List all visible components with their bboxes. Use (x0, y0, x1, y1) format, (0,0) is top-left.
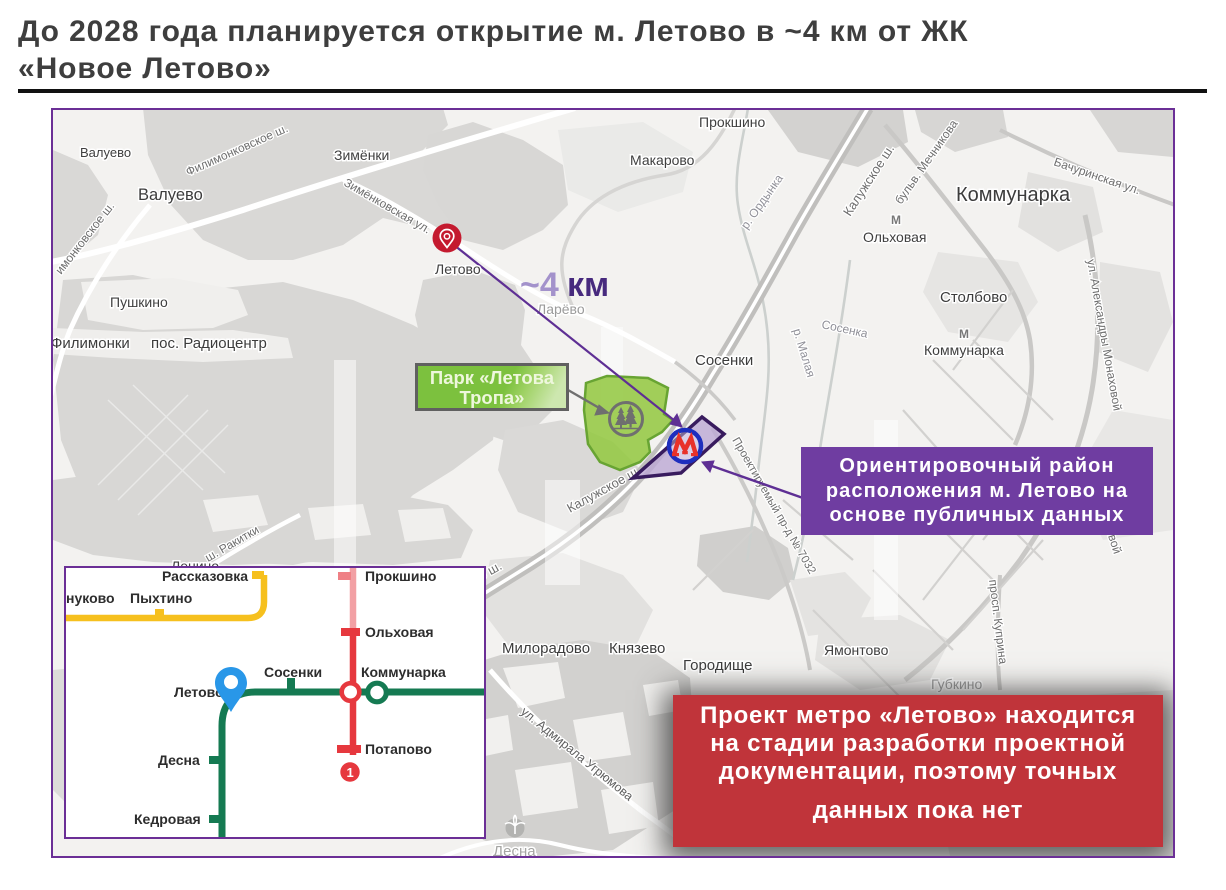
svg-text:Потапово: Потапово (365, 741, 432, 757)
svg-text:Пушкино: Пушкино (110, 294, 168, 310)
svg-text:Ольховая: Ольховая (365, 624, 434, 640)
svg-text:Коммунарка: Коммунарка (361, 664, 446, 680)
svg-text:Сосенки: Сосенки (264, 664, 322, 680)
svg-text:Десна: Десна (158, 752, 200, 768)
svg-text:нуково: нуково (66, 590, 115, 606)
svg-text:Кедровая: Кедровая (134, 811, 201, 827)
svg-text:Ямонтово: Ямонтово (824, 642, 889, 658)
svg-text:Летово: Летово (435, 261, 481, 277)
svg-text:Ольховая: Ольховая (863, 229, 926, 245)
svg-text:М: М (891, 213, 901, 227)
svg-text:Пыхтино: Пыхтино (130, 590, 192, 606)
svg-text:Филимонки: Филимонки (53, 335, 130, 352)
svg-text:Зимёнки: Зимёнки (334, 147, 389, 163)
svg-text:Прокшино: Прокшино (699, 114, 766, 130)
svg-text:Рассказовка: Рассказовка (162, 568, 248, 584)
svg-text:Губкино: Губкино (931, 676, 982, 692)
svg-text:Городище: Городище (683, 657, 752, 674)
svg-text:Валуево: Валуево (138, 186, 203, 204)
svg-text:~4: ~4 (520, 266, 559, 304)
svg-text:Макарово: Макарово (630, 152, 695, 168)
svg-text:Коммунарка: Коммунарка (924, 342, 1004, 358)
svg-text:1: 1 (347, 765, 354, 780)
svg-text:Столбово: Столбово (940, 289, 1007, 306)
svg-text:Милорадово: Милорадово (502, 640, 590, 657)
svg-text:Десна: Десна (493, 843, 536, 856)
svg-text:Сосенки: Сосенки (695, 352, 753, 369)
svg-text:Прокшино: Прокшино (365, 568, 436, 584)
svg-text:км: км (567, 266, 609, 304)
svg-text:Валуево: Валуево (80, 145, 131, 160)
svg-text:Коммунарка: Коммунарка (956, 184, 1071, 206)
svg-text:Князево: Князево (609, 640, 665, 657)
svg-text:М: М (959, 327, 969, 341)
svg-text:пос. Радиоцентр: пос. Радиоцентр (151, 335, 267, 352)
